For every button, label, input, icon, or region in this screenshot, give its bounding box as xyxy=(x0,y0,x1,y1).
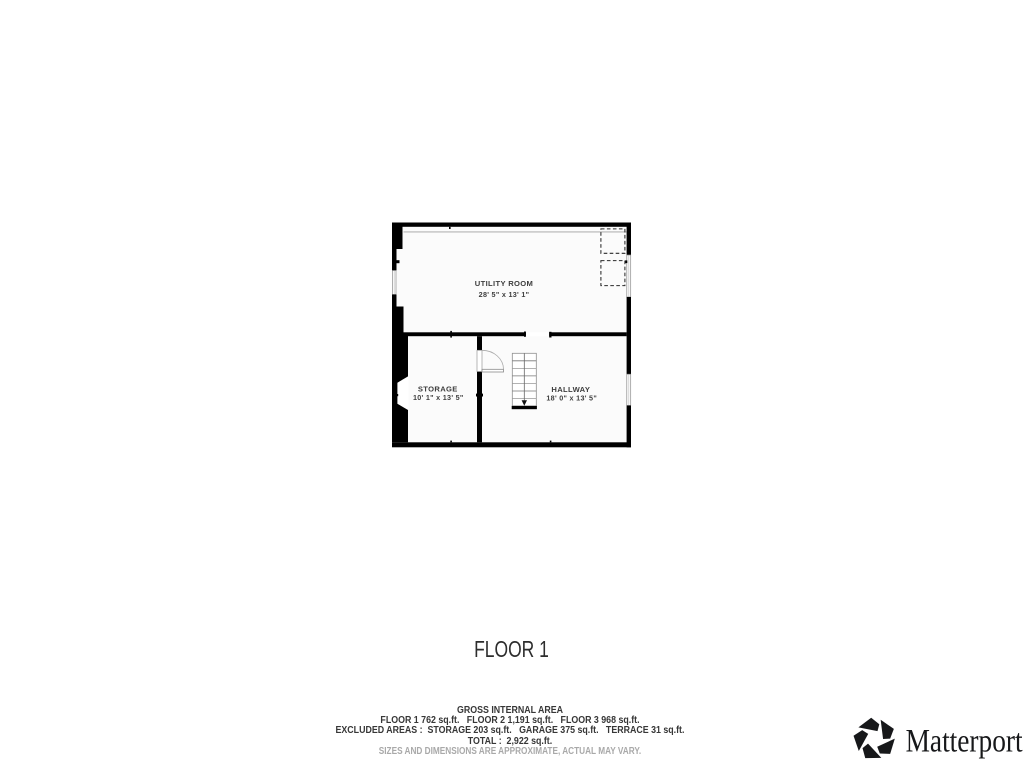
svg-text:18' 0" x 13' 5": 18' 0" x 13' 5" xyxy=(546,394,597,403)
svg-text:28' 5" x 13' 1": 28' 5" x 13' 1" xyxy=(479,290,530,299)
svg-text:UTILITY ROOM: UTILITY ROOM xyxy=(475,279,533,288)
svg-text:10' 1" x 13' 5": 10' 1" x 13' 5" xyxy=(413,393,464,402)
svg-text:Matterport: Matterport xyxy=(906,724,1023,760)
